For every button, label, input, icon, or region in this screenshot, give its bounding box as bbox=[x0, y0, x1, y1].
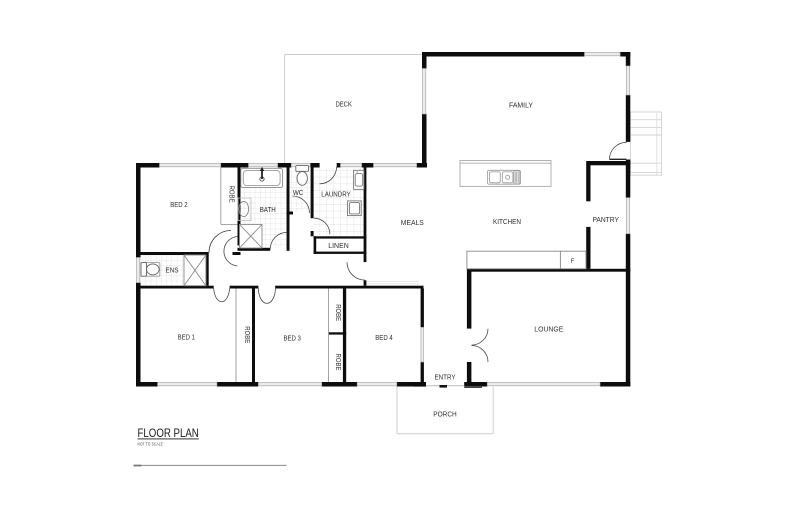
svg-text:DECK: DECK bbox=[335, 100, 352, 109]
svg-text:BED 4: BED 4 bbox=[375, 333, 392, 342]
svg-text:ROBE: ROBE bbox=[334, 304, 343, 321]
svg-text:ROBE: ROBE bbox=[334, 354, 343, 371]
svg-text:MEALS: MEALS bbox=[401, 218, 424, 227]
svg-text:NOT TO SCALE: NOT TO SCALE bbox=[138, 441, 164, 446]
svg-text:BED 1: BED 1 bbox=[178, 333, 195, 342]
svg-text:PORCH: PORCH bbox=[433, 410, 457, 419]
svg-text:ROBE: ROBE bbox=[243, 326, 252, 343]
svg-text:FAMILY: FAMILY bbox=[509, 100, 533, 109]
svg-text:WC: WC bbox=[293, 188, 304, 197]
svg-text:LOUNGE: LOUNGE bbox=[534, 324, 563, 333]
svg-text:KITCHEN: KITCHEN bbox=[493, 217, 521, 226]
svg-text:ENTRY: ENTRY bbox=[435, 373, 456, 382]
svg-text:LAUNDRY: LAUNDRY bbox=[321, 190, 351, 199]
svg-text:PANTRY: PANTRY bbox=[592, 215, 619, 224]
svg-text:BATH: BATH bbox=[260, 205, 276, 214]
svg-text:F: F bbox=[571, 259, 575, 265]
svg-text:ROBE: ROBE bbox=[227, 186, 236, 203]
svg-text:BED 3: BED 3 bbox=[284, 334, 301, 343]
svg-text:LINEN: LINEN bbox=[328, 241, 349, 250]
svg-text:ENS: ENS bbox=[166, 265, 179, 274]
svg-text:BED 2: BED 2 bbox=[170, 200, 187, 209]
